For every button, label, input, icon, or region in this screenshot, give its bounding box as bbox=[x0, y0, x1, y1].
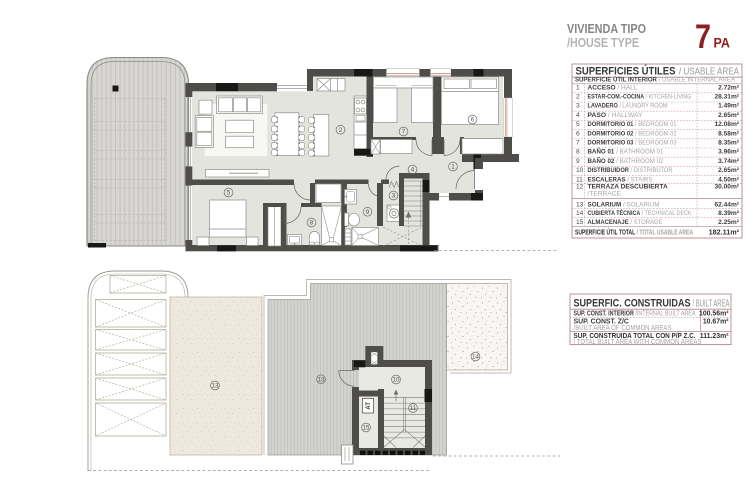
svg-text:9: 9 bbox=[366, 209, 370, 216]
svg-text:14: 14 bbox=[576, 210, 584, 217]
svg-text:DISTRIBUIDOR / DISTRIBUTOR: DISTRIBUIDOR / DISTRIBUTOR bbox=[588, 167, 673, 174]
svg-text:SUPERFICIE ÚTIL TOTAL / TOTAL: SUPERFICIE ÚTIL TOTAL / TOTAL USABLE ARE… bbox=[575, 228, 693, 237]
svg-text:62.44m²: 62.44m² bbox=[714, 201, 739, 208]
svg-text:3: 3 bbox=[392, 193, 396, 200]
svg-text:DORMITORIO 03 / BEDROOM 03: DORMITORIO 03 / BEDROOM 03 bbox=[588, 140, 677, 147]
svg-text:3: 3 bbox=[576, 103, 580, 110]
svg-text:13: 13 bbox=[212, 383, 219, 390]
svg-text:15: 15 bbox=[576, 219, 584, 226]
svg-text:DORMITORIO 01 / BEDROOM 01: DORMITORIO 01 / BEDROOM 01 bbox=[588, 121, 677, 128]
svg-text:8.58m²: 8.58m² bbox=[718, 130, 740, 137]
svg-text:28.31m²: 28.31m² bbox=[714, 94, 739, 101]
svg-text:8.39m²: 8.39m² bbox=[718, 210, 740, 217]
svg-text:SUPERFICIE ÚTIL INTERIOR / USA: SUPERFICIE ÚTIL INTERIOR / USABLE INTERN… bbox=[575, 75, 736, 84]
svg-text:30.00m²: 30.00m² bbox=[714, 184, 739, 191]
svg-text:AT: AT bbox=[365, 402, 372, 410]
svg-text:1.49m²: 1.49m² bbox=[718, 103, 740, 110]
svg-text:BAÑO 01 / BATHROOM 01: BAÑO 01 / BATHROOM 01 bbox=[588, 147, 664, 156]
svg-text:2: 2 bbox=[576, 94, 580, 101]
svg-text:13: 13 bbox=[318, 377, 325, 384]
svg-text:SOLARIUM / SOLARIUM: SOLARIUM / SOLARIUM bbox=[588, 201, 660, 208]
svg-text:/ BUILT AREA: / BUILT AREA bbox=[693, 298, 730, 309]
svg-text:4.50m²: 4.50m² bbox=[718, 176, 740, 183]
svg-text:11: 11 bbox=[576, 176, 583, 183]
svg-text:10.67m²: 10.67m² bbox=[703, 319, 729, 326]
svg-text:2.65m²: 2.65m² bbox=[718, 112, 740, 119]
svg-text:8.35m²: 8.35m² bbox=[718, 140, 740, 147]
svg-text:SUPERFIC. CONSTRUIDAS: SUPERFIC. CONSTRUIDAS bbox=[574, 297, 691, 309]
svg-text:7: 7 bbox=[576, 140, 580, 147]
svg-text:CUBIERTA TÉCNICA / TECHNICAL D: CUBIERTA TÉCNICA / TECHNICAL DECK bbox=[588, 208, 692, 217]
svg-text:2.25m²: 2.25m² bbox=[718, 219, 740, 226]
svg-text:ALMACENAJE / STORAGE: ALMACENAJE / STORAGE bbox=[588, 219, 664, 226]
svg-text:PA: PA bbox=[714, 36, 731, 51]
svg-text:1: 1 bbox=[576, 84, 580, 91]
svg-text:12: 12 bbox=[576, 184, 584, 191]
svg-text:9: 9 bbox=[576, 158, 580, 165]
svg-text:PASO / HALLWAY: PASO / HALLWAY bbox=[588, 112, 644, 119]
svg-text:SUP. CONST. INTERIOR /INTERNAL: SUP. CONST. INTERIOR /INTERNAL BUILT ARE… bbox=[574, 310, 696, 317]
svg-text:2: 2 bbox=[339, 127, 343, 134]
svg-text:/HOUSE TYPE: /HOUSE TYPE bbox=[567, 36, 639, 50]
svg-text:VIVIENDA TIPO: VIVIENDA TIPO bbox=[567, 22, 646, 36]
svg-text:10: 10 bbox=[576, 167, 584, 174]
svg-text:ACCESO / HALL: ACCESO / HALL bbox=[588, 84, 638, 91]
svg-text:BAÑO 02 / BATHROOM 02: BAÑO 02 / BATHROOM 02 bbox=[588, 156, 664, 165]
svg-text:3.74m²: 3.74m² bbox=[718, 158, 740, 165]
svg-text:SUPERFICIES ÚTILES: SUPERFICIES ÚTILES bbox=[576, 64, 676, 77]
svg-text:8: 8 bbox=[576, 149, 580, 156]
svg-text:10: 10 bbox=[393, 377, 400, 384]
svg-text:/TERRACE: /TERRACE bbox=[588, 190, 622, 197]
svg-text:8: 8 bbox=[310, 220, 314, 227]
svg-text:11: 11 bbox=[410, 405, 417, 412]
svg-text:2.72m²: 2.72m² bbox=[718, 84, 740, 91]
svg-text:182.11m²: 182.11m² bbox=[709, 228, 740, 237]
svg-text:13: 13 bbox=[576, 201, 584, 208]
svg-text:2.65m²: 2.65m² bbox=[718, 167, 740, 174]
svg-text:1: 1 bbox=[451, 164, 455, 171]
svg-text:4: 4 bbox=[576, 112, 580, 119]
svg-text:4: 4 bbox=[411, 167, 415, 174]
svg-text:/ TOTAL BUILT AREA WITH COMMON: / TOTAL BUILT AREA WITH COMMON AREAS bbox=[574, 339, 702, 346]
svg-text:5: 5 bbox=[576, 121, 580, 128]
svg-text:/BUILT AREA OF COMMON AREAS: /BUILT AREA OF COMMON AREAS bbox=[574, 325, 672, 332]
svg-text:15: 15 bbox=[363, 425, 370, 432]
svg-text:LAVADERO / LAUNDRY ROOM: LAVADERO / LAUNDRY ROOM bbox=[588, 103, 668, 110]
svg-text:5: 5 bbox=[227, 190, 231, 197]
svg-text:7: 7 bbox=[402, 129, 406, 136]
svg-text:14: 14 bbox=[472, 354, 479, 361]
svg-text:111.23m²: 111.23m² bbox=[700, 333, 729, 340]
svg-text:6: 6 bbox=[576, 130, 580, 137]
svg-text:12.08m²: 12.08m² bbox=[714, 121, 739, 128]
svg-text:7: 7 bbox=[695, 18, 711, 56]
svg-text:ESTAR-COM.-COCINA / KITCHEN-LI: ESTAR-COM.-COCINA / KITCHEN-LIVING bbox=[588, 94, 692, 101]
svg-text:100.56m²: 100.56m² bbox=[699, 310, 729, 317]
svg-text:3.96m²: 3.96m² bbox=[718, 149, 740, 156]
svg-text:6: 6 bbox=[471, 117, 475, 124]
svg-text:DORMITORIO 02 / BEDROOM 02: DORMITORIO 02 / BEDROOM 02 bbox=[588, 130, 677, 137]
svg-text:ESCALERAS / STAIRS: ESCALERAS / STAIRS bbox=[588, 176, 654, 183]
